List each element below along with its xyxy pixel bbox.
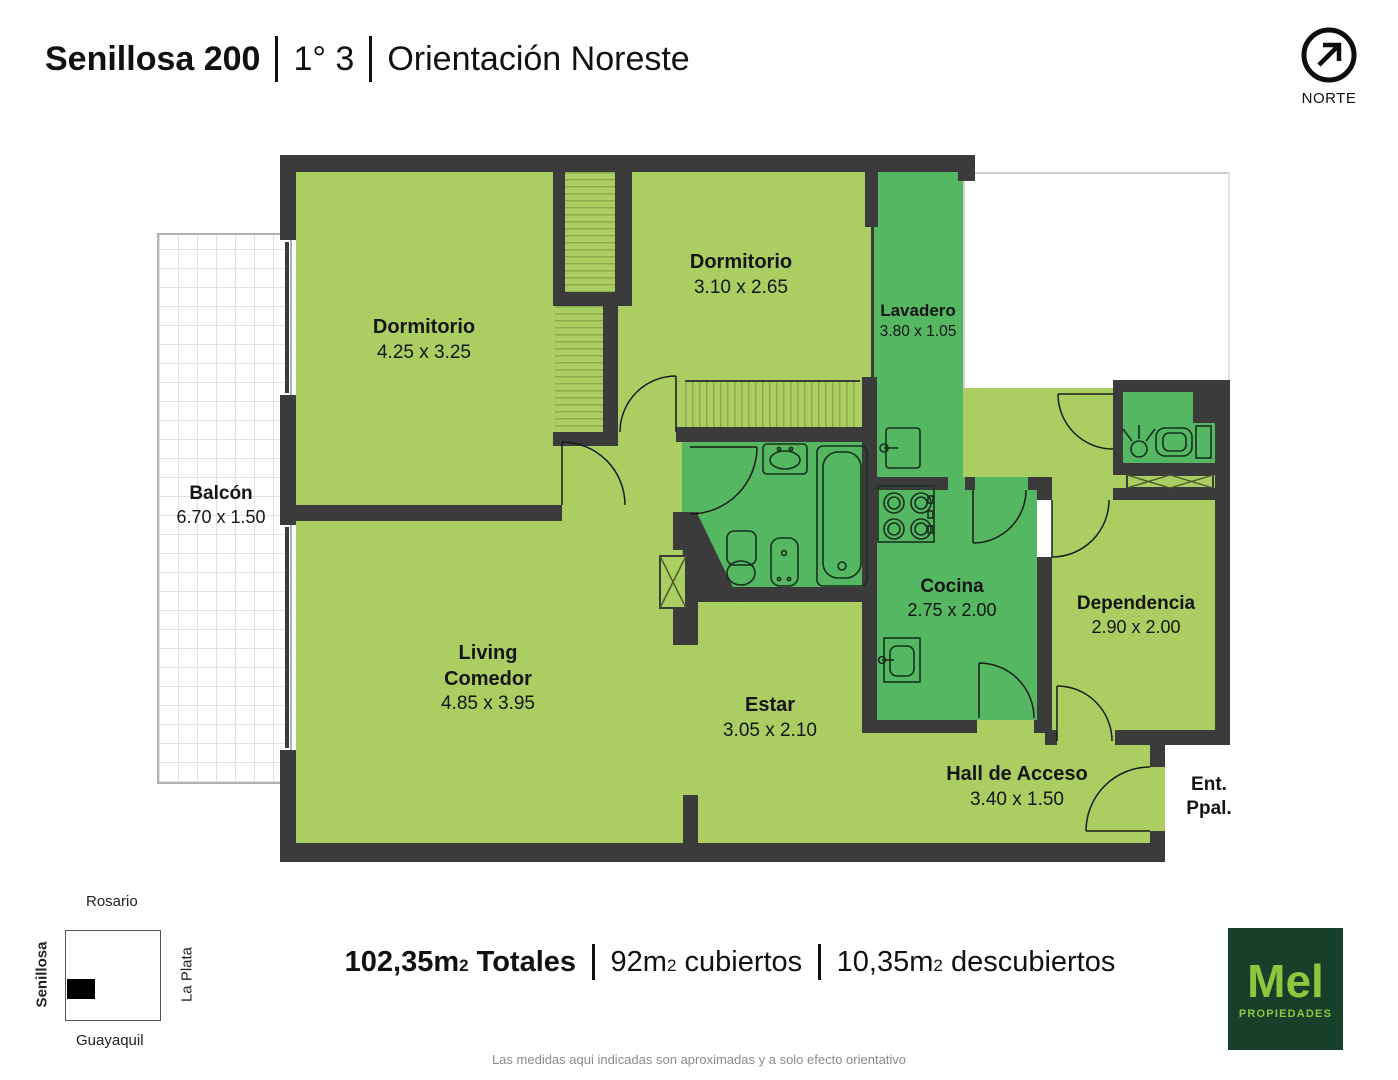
floorplan-page: Senillosa 200 1° 3 Orientación Noreste N… xyxy=(0,0,1398,1080)
uncovered-area: 10,35m2 descubiertos xyxy=(837,946,1116,979)
sink-icon xyxy=(763,444,807,474)
agency-logo-tagline: PROPIEDADES xyxy=(1239,1008,1332,1020)
summary-separator xyxy=(592,944,595,980)
covered-area: 92m2 cubiertos xyxy=(611,946,803,979)
wall-chamfer xyxy=(698,515,740,602)
total-area: 102,35m2 Totales xyxy=(345,946,576,979)
street-label-west: Senillosa xyxy=(34,932,51,1018)
room-label-lavadero: Lavadero 3.80 x 1.05 xyxy=(853,300,983,342)
kitchen-sink-icon xyxy=(879,638,920,682)
area-summary: 102,35m2 Totales 92m2 cubiertos 10,35m2 … xyxy=(290,944,1170,980)
door-arc-dependencia-hall xyxy=(1057,686,1112,741)
street-label-south: Guayaquil xyxy=(76,1032,144,1049)
door-arc-bathroom xyxy=(690,447,757,514)
bidet-icon xyxy=(771,538,798,586)
room-label-dormitorio1: Dormitorio 4.25 x 3.25 xyxy=(324,315,524,365)
agency-logo: Mel PROPIEDADES xyxy=(1228,928,1343,1050)
room-label-balcon: Balcón 6.70 x 1.50 xyxy=(151,482,291,529)
shower-icon xyxy=(1123,425,1155,457)
door-arc-dormitorio2 xyxy=(620,376,676,432)
room-label-cocina: Cocina 2.75 x 2.00 xyxy=(872,575,1032,622)
room-label-entrada: Ent. Ppal. xyxy=(1164,773,1254,822)
door-arc-toilette xyxy=(1058,394,1113,449)
room-label-hall: Hall de Acceso 3.40 x 1.50 xyxy=(897,762,1137,812)
street-label-east: La Plata xyxy=(179,935,196,1015)
door-arc-dependencia-top xyxy=(1052,500,1109,557)
room-label-estar: Estar 3.05 x 2.10 xyxy=(670,693,870,743)
air-shaft-icon xyxy=(660,556,686,608)
minimap-building-marker xyxy=(67,979,95,999)
bathtub-icon xyxy=(817,446,867,586)
stove-icon xyxy=(878,486,934,542)
toilet-icon xyxy=(1156,426,1211,458)
location-minimap: Rosario Senillosa La Plata Guayaquil xyxy=(0,880,260,1080)
room-label-dormitorio2: Dormitorio 3.10 x 2.65 xyxy=(641,250,841,300)
street-label-north: Rosario xyxy=(86,893,138,910)
door-arc-dormitorio1 xyxy=(562,442,625,505)
agency-logo-brand: Mel xyxy=(1247,958,1324,1004)
washer-icon xyxy=(880,428,920,468)
air-shaft-icon xyxy=(1127,475,1213,488)
minimap-block xyxy=(65,930,161,1021)
disclaimer-text: Las medidas aqui indicadas son aproximad… xyxy=(0,1052,1398,1067)
door-arc-cocina-top xyxy=(973,490,1026,543)
toilet-icon xyxy=(727,531,756,585)
door-arc-cocina-hall xyxy=(979,663,1034,718)
summary-separator xyxy=(818,944,821,980)
room-label-dependencia: Dependencia 2.90 x 2.00 xyxy=(1036,592,1236,639)
room-label-living: Living Comedor 4.85 x 3.95 xyxy=(388,641,588,717)
